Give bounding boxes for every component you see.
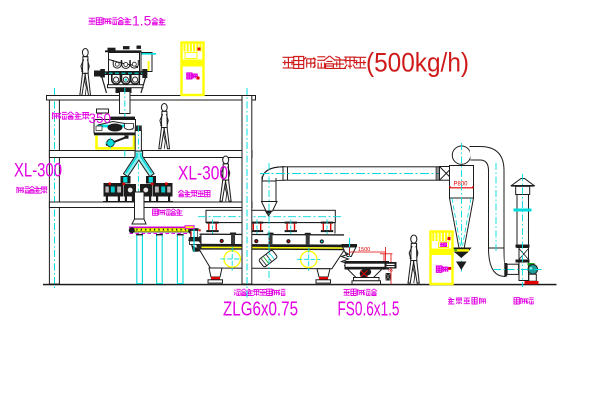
svg-text:XL-300: XL-300 <box>178 163 228 185</box>
svg-text:XL-300: XL-300 <box>14 160 62 182</box>
svg-text:350: 350 <box>89 111 112 126</box>
svg-text:1500: 1500 <box>358 247 370 253</box>
svg-text:FS0.6x1.5: FS0.6x1.5 <box>338 299 400 321</box>
svg-text:ZLG6x0.75: ZLG6x0.75 <box>223 299 298 321</box>
svg-text:1.5: 1.5 <box>132 13 152 29</box>
svg-text:(500kg/h): (500kg/h) <box>366 48 469 78</box>
svg-text:P800: P800 <box>454 181 469 187</box>
